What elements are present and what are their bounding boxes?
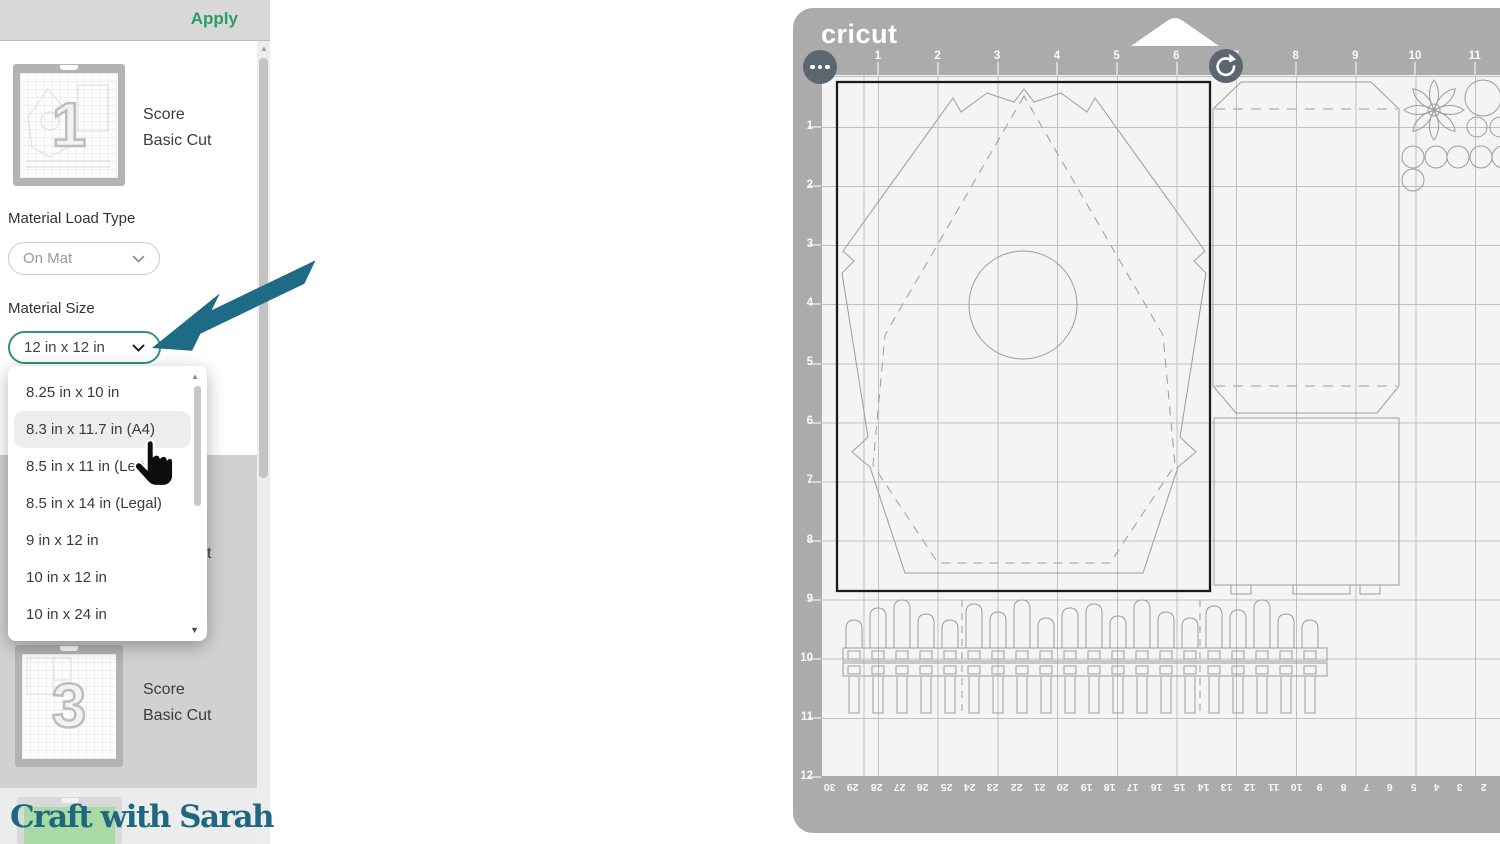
scroll-down-icon[interactable]: ▼: [190, 625, 199, 635]
fence-score-lines: [962, 600, 1200, 713]
scroll-up-icon[interactable]: ▲: [191, 372, 199, 381]
material-load-type-select[interactable]: On Mat: [8, 242, 160, 275]
size-option-2-hovered[interactable]: 8.3 in x 11.7 in (A4): [14, 411, 191, 448]
material-size-value: 12 in x 12 in: [24, 339, 105, 356]
sidebar-topbar: Apply: [0, 0, 270, 41]
mat-thumbnail-3[interactable]: 3: [15, 645, 123, 767]
flower-shape[interactable]: [1404, 80, 1464, 140]
selection-bounding-box[interactable]: [837, 82, 1210, 591]
material-size-select[interactable]: 12 in x 12 in: [8, 331, 161, 364]
cutting-mat-preview: cricut 1234567891011 123456789101112 302…: [793, 8, 1500, 833]
circle-shapes[interactable]: [1402, 80, 1500, 191]
size-option-1[interactable]: 8.25 in x 10 in: [14, 374, 191, 411]
birdhouse-hole: [969, 251, 1077, 359]
size-option-6[interactable]: 10 in x 12 in: [14, 559, 191, 596]
ruler-bottom-centimeters: 3029282726252423222120191817161514131211…: [818, 777, 1495, 797]
sidebar-scrollbar-thumb[interactable]: [259, 58, 268, 478]
size-option-4[interactable]: 8.5 in x 14 in (Legal): [14, 485, 191, 522]
chevron-down-icon: [132, 255, 145, 263]
material-load-type-value: On Mat: [23, 250, 72, 267]
mat-canvas: [793, 8, 1500, 833]
mat-thumbnail-1[interactable]: 1: [13, 64, 125, 186]
rotate-icon: [1209, 49, 1243, 83]
mat-number-3: 3: [15, 645, 123, 767]
mat1-layer-basic-cut: Basic Cut: [143, 132, 211, 150]
score-lines: [873, 96, 1175, 563]
dropdown-scrollbar-thumb[interactable]: [194, 386, 201, 506]
size-option-5[interactable]: 9 in x 12 in: [14, 522, 191, 559]
mat3-layer-score: Score: [143, 681, 185, 699]
scroll-up-icon[interactable]: ▲: [258, 44, 270, 53]
mat-number-1: 1: [13, 64, 125, 186]
rotate-mat-button[interactable]: [1209, 49, 1243, 83]
mat3-layer-basic-cut: Basic Cut: [143, 707, 211, 725]
more-options-button[interactable]: [803, 50, 837, 84]
ruler-left-inches: 123456789101112: [793, 97, 819, 806]
cricut-logo: cricut: [821, 19, 898, 50]
chevron-down-icon: [132, 344, 145, 352]
apply-button[interactable]: Apply: [191, 9, 238, 29]
ellipsis-icon: [810, 65, 830, 70]
mat-top-tab: [1131, 18, 1219, 46]
envelope-template-shape[interactable]: [1213, 82, 1399, 413]
size-option-3[interactable]: 8.5 in x 11 in (Letter): [14, 448, 191, 485]
material-load-type-label: Material Load Type: [8, 210, 135, 227]
mat1-layer-score: Score: [143, 106, 185, 124]
material-size-dropdown: 8.25 in x 10 in 8.3 in x 11.7 in (A4) 8.…: [8, 366, 207, 641]
box-template-shape[interactable]: [1214, 418, 1399, 594]
fence-template-shape[interactable]: [843, 600, 1327, 713]
birdhouse-template-shape[interactable]: [842, 89, 1206, 573]
ruler-top-inches: 1234567891011: [848, 50, 1500, 62]
craft-with-sarah-logo: Craft with Sarah: [10, 799, 273, 835]
size-option-7[interactable]: 10 in x 24 in: [14, 596, 191, 633]
material-size-label: Material Size: [8, 300, 95, 317]
